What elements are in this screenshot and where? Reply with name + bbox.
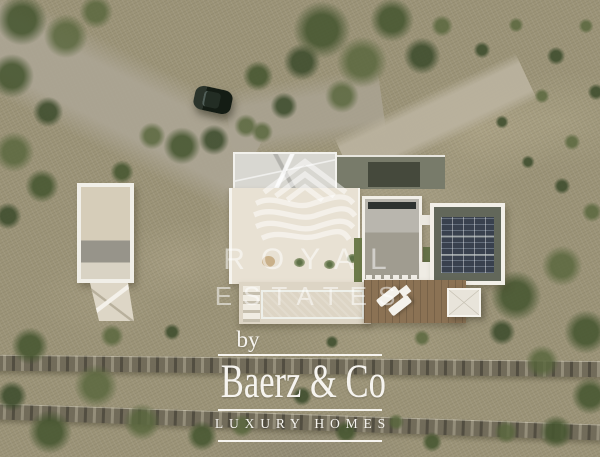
pyramid-roof-pavilion (447, 288, 481, 317)
royal-estates-watermark: ROYAL ESTATES (165, 150, 445, 312)
watermark-brand-text: Baerz & Co (221, 356, 379, 407)
car-roof (202, 90, 222, 109)
solar-panel-array (441, 217, 494, 273)
royal-estates-logo-icon (246, 150, 364, 242)
watermark-by-text: by (138, 328, 358, 352)
aerial-photo: ROYAL ESTATES by Baerz & Co LUXURY HOMES (0, 0, 600, 457)
watermark-text-royal: ROYAL (165, 243, 445, 277)
baerz-co-watermark: by Baerz & Co LUXURY HOMES (190, 328, 410, 442)
watermark-rule-bottom (218, 440, 382, 442)
carport-pergola (77, 183, 134, 283)
watermark-text-estates: ESTATES (165, 281, 445, 312)
watermark-tagline-text: LUXURY HOMES (193, 411, 406, 438)
